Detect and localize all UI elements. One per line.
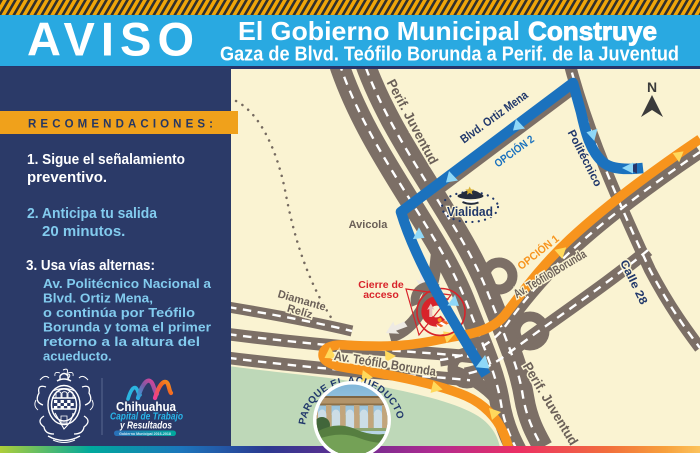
svg-text:2. Anticipa tu salida: 2. Anticipa tu salida bbox=[27, 205, 158, 222]
svg-text:3. Usa vías alternas:: 3. Usa vías alternas: bbox=[26, 257, 155, 274]
svg-text:El Gobierno Municipal: El Gobierno Municipal bbox=[238, 16, 520, 46]
svg-text:y Resultados: y Resultados bbox=[119, 421, 172, 432]
svg-text:Gaza de Blvd. Teófilo Borunda: Gaza de Blvd. Teófilo Borunda a Perif. d… bbox=[220, 44, 679, 66]
svg-text:AVISO: AVISO bbox=[27, 13, 194, 66]
svg-text:Construye: Construye bbox=[528, 16, 657, 46]
svg-text:Borunda y toma el primer: Borunda y toma el primer bbox=[43, 320, 211, 335]
svg-text:preventivo.: preventivo. bbox=[27, 169, 107, 186]
svg-text:N: N bbox=[647, 79, 657, 95]
svg-text:retorno a la altura del: retorno a la altura del bbox=[43, 334, 200, 349]
svg-text:Blvd. Ortiz Mena,: Blvd. Ortiz Mena, bbox=[43, 291, 153, 306]
svg-text:1. Sigue el señalamiento: 1. Sigue el señalamiento bbox=[27, 151, 185, 168]
svg-text:Vialidad: Vialidad bbox=[447, 205, 493, 219]
svg-text:acceso: acceso bbox=[363, 289, 399, 301]
svg-text:Av. Politécnico Nacional a: Av. Politécnico Nacional a bbox=[43, 276, 212, 291]
svg-text:o continúa por Teófilo: o continúa por Teófilo bbox=[43, 305, 195, 320]
svg-text:acueducto.: acueducto. bbox=[43, 349, 112, 364]
svg-text:Gobierno Municipal 2016-2018: Gobierno Municipal 2016-2018 bbox=[119, 432, 171, 436]
svg-text:RECOMENDACIONES:: RECOMENDACIONES: bbox=[28, 119, 213, 131]
svg-text:20 minutos.: 20 minutos. bbox=[42, 223, 125, 240]
svg-text:Avicola: Avicola bbox=[349, 219, 389, 231]
